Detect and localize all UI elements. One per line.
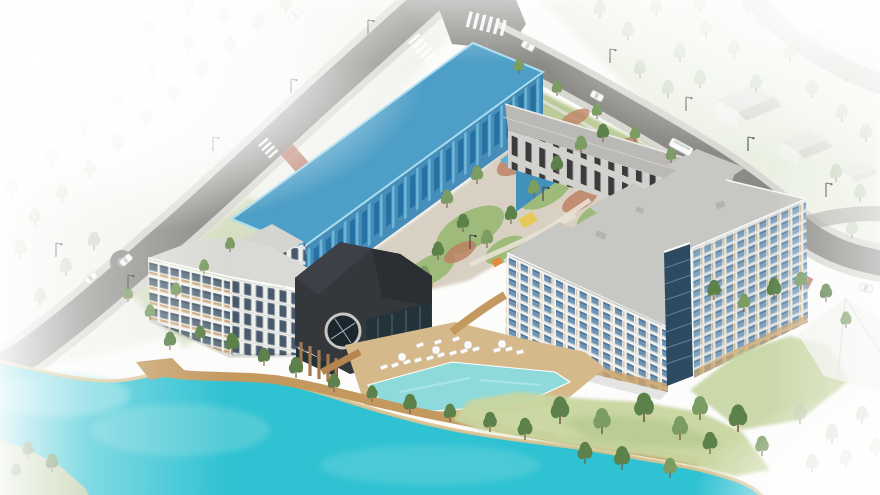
rendering-canvas [0,0,880,495]
site-rendering [0,0,880,495]
glass-stair-tower [664,243,693,386]
